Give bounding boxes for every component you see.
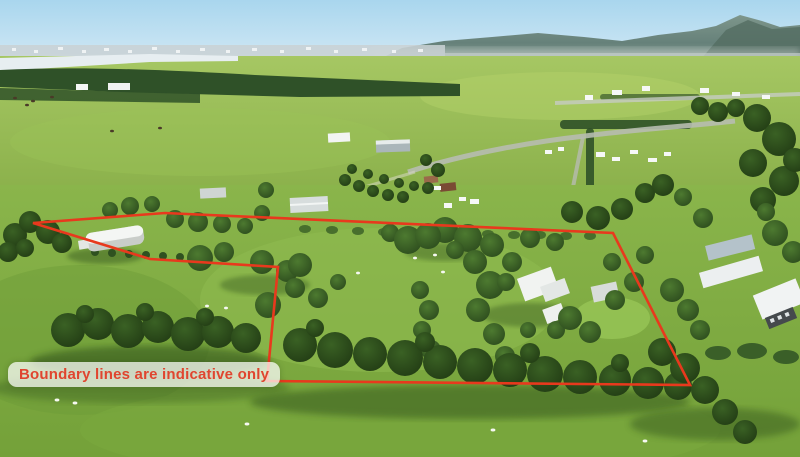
- aerial-photo: Boundary lines are indicative only: [0, 0, 800, 457]
- boundary-disclaimer-text: Boundary lines are indicative only: [19, 366, 269, 383]
- aerial-scene: [0, 0, 800, 457]
- boundary-disclaimer-label: Boundary lines are indicative only: [8, 362, 280, 387]
